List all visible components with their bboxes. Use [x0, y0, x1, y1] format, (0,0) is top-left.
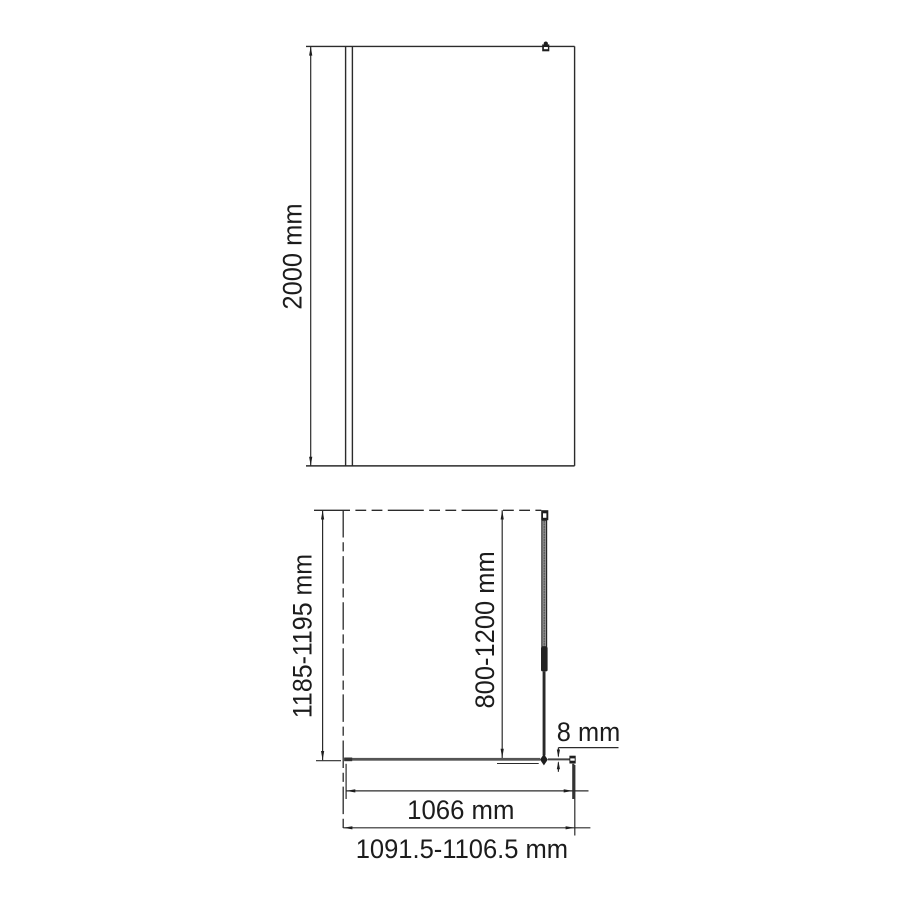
svg-text:1091.5-1106.5 mm: 1091.5-1106.5 mm — [356, 834, 568, 864]
svg-text:800-1200 mm: 800-1200 mm — [470, 551, 500, 708]
svg-text:8 mm: 8 mm — [557, 717, 620, 747]
svg-text:1185-1195 mm: 1185-1195 mm — [287, 554, 317, 718]
svg-text:1066 mm: 1066 mm — [407, 795, 514, 825]
svg-text:2000 mm: 2000 mm — [278, 203, 308, 309]
